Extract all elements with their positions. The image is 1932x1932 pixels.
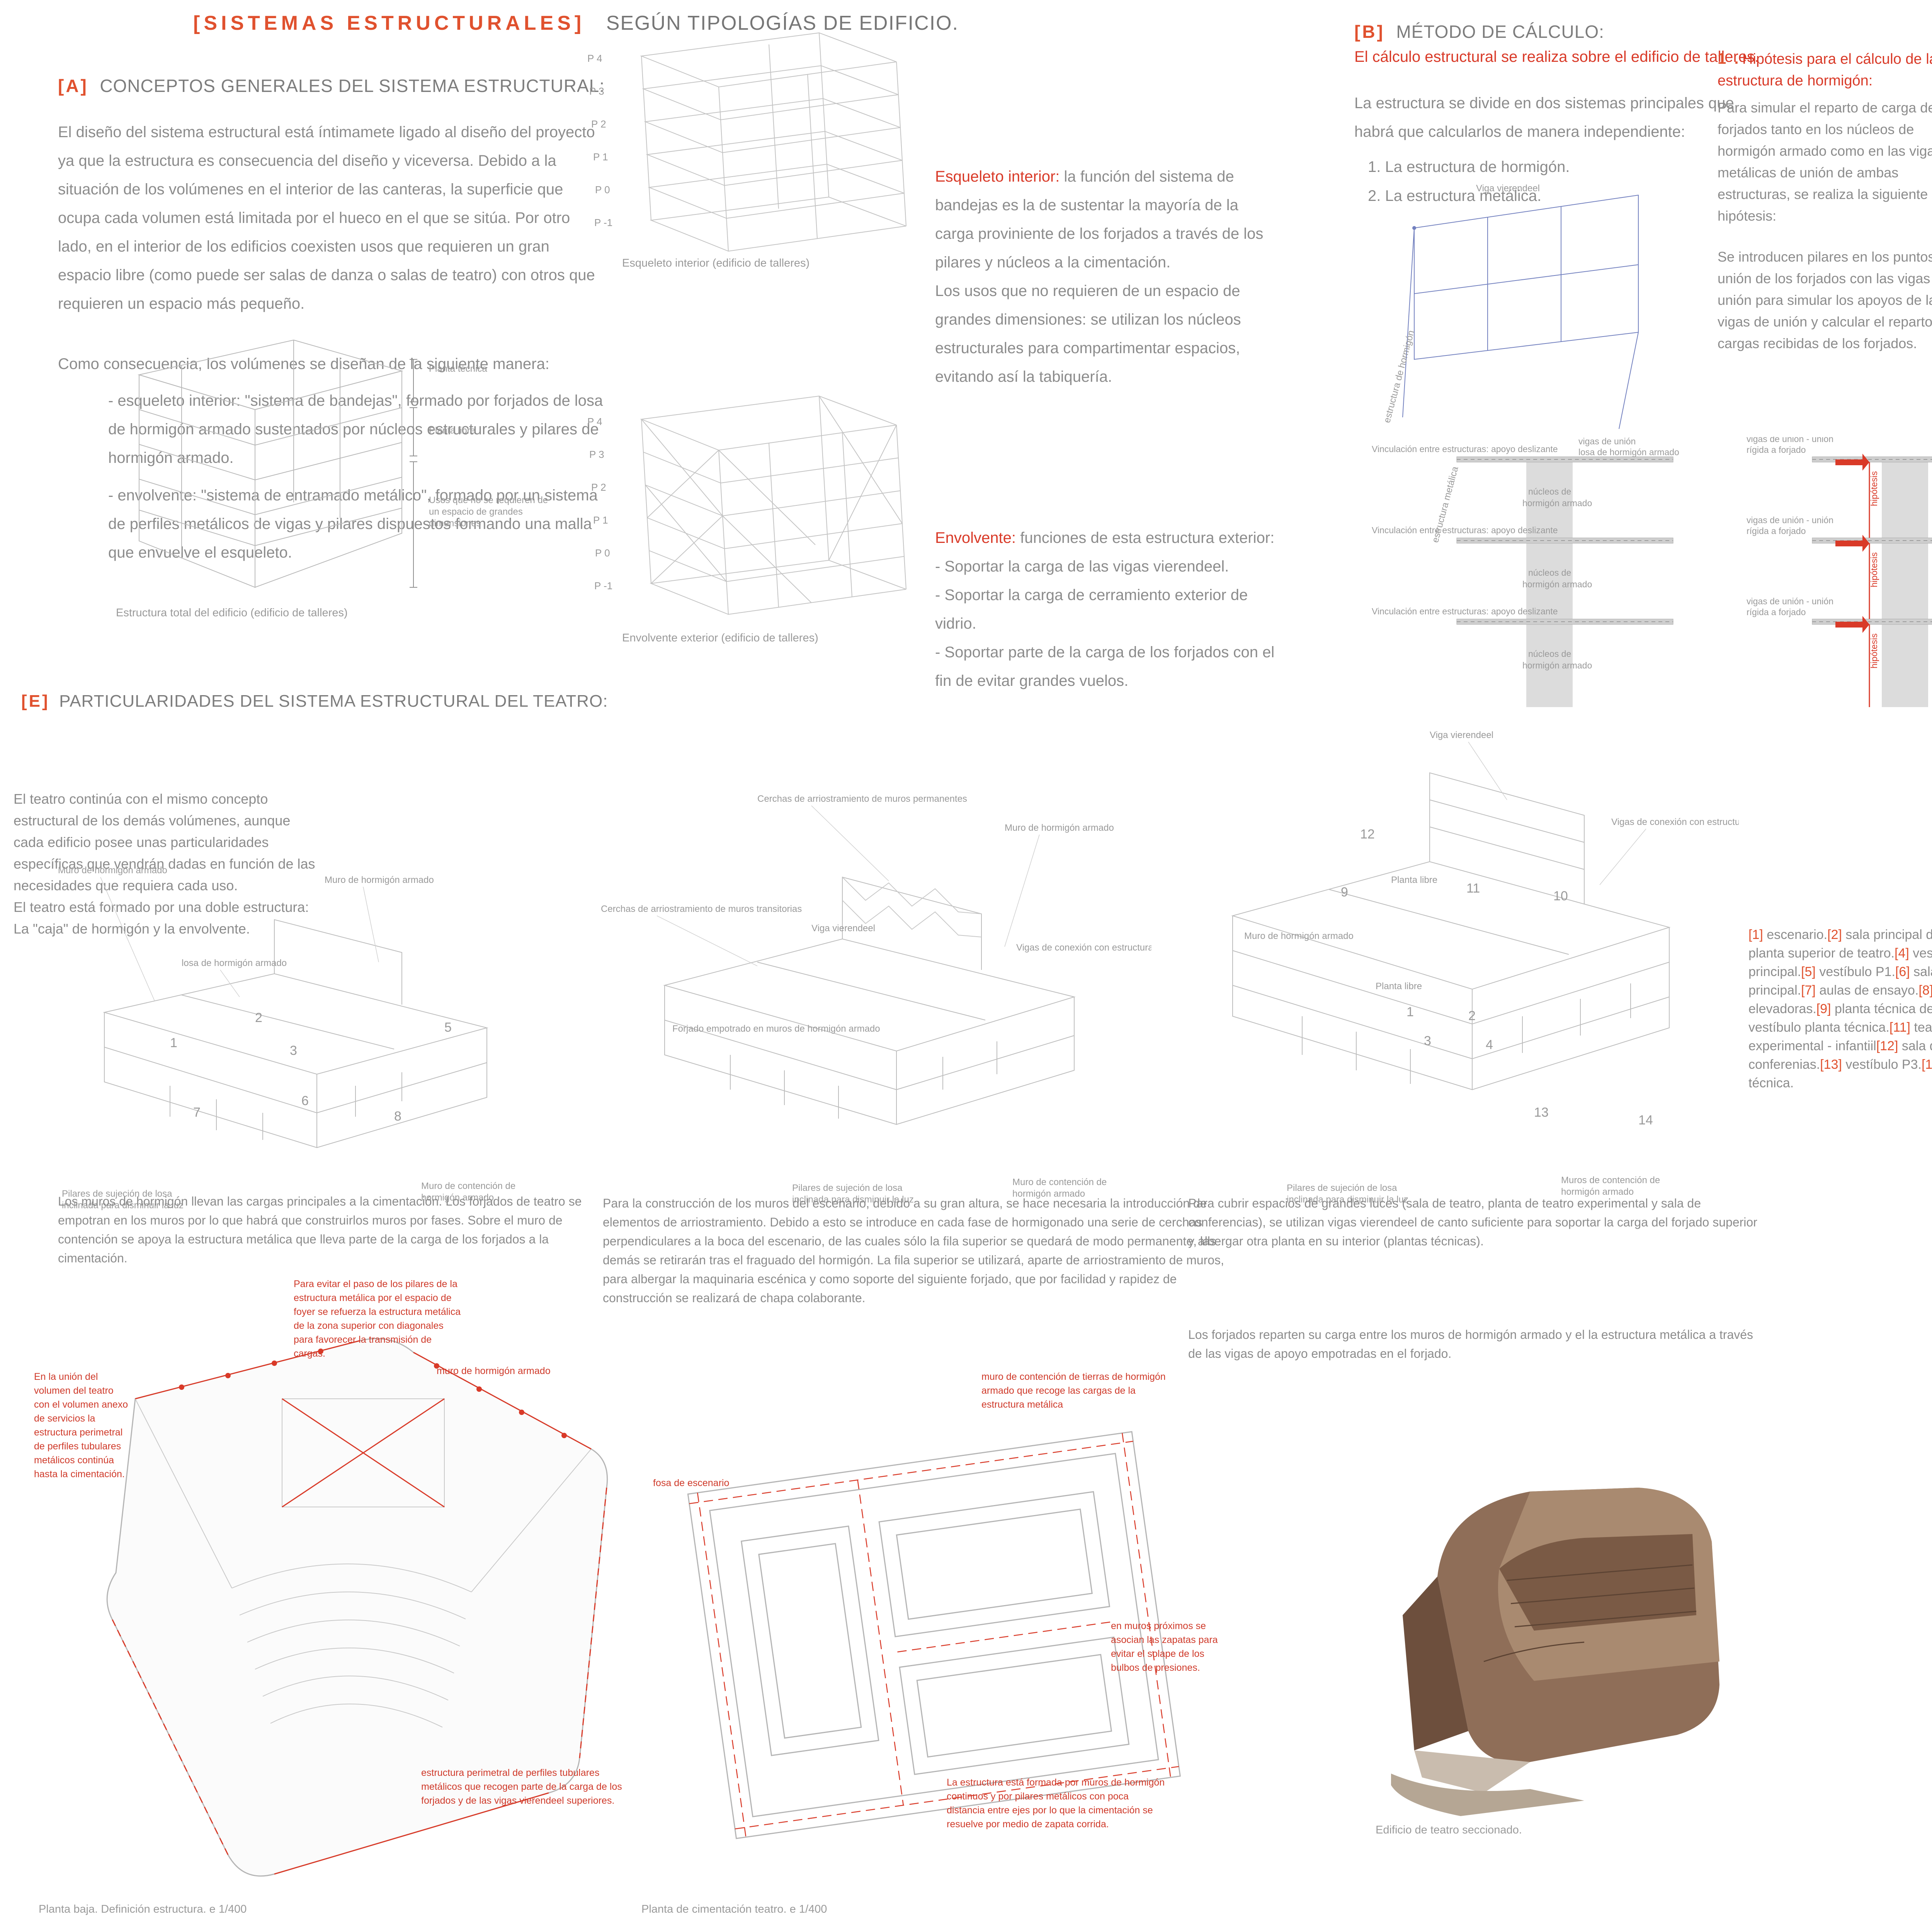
esqueleto-note-text2: Los usos que no requieren de un espacio … bbox=[935, 277, 1275, 391]
teatro-axon-3: 12 9 11 10 1 3 2 4 13 14 Viga vierendeel… bbox=[1175, 723, 1739, 1171]
bracket-label-planta-tecnica: Planta técnica bbox=[429, 363, 487, 375]
axon-label: Viga vierendeel bbox=[1430, 730, 1493, 740]
axon-number: 3 bbox=[1424, 1034, 1431, 1048]
planB-note-bottom: La estructura está formada por muros de … bbox=[947, 1776, 1167, 1831]
planB-note-fosa: fosa de escenario bbox=[653, 1476, 738, 1490]
legend-text: planta técnica de teatro. bbox=[1831, 1002, 1932, 1016]
envolvente-caption: Envolvente exterior (edificio de tallere… bbox=[622, 632, 818, 645]
total-structure-axon-figure bbox=[93, 294, 425, 603]
legend-num: [14] bbox=[1922, 1057, 1932, 1072]
axon-number: 11 bbox=[1466, 881, 1480, 896]
envolvente-note-b1: - Soportar la carga de las vigas vierend… bbox=[935, 552, 1283, 581]
axon-number: 3 bbox=[290, 1043, 297, 1058]
floor-label: P -1 bbox=[594, 580, 612, 592]
envolvente-note-b2: - Soportar la carga de cerramiento exter… bbox=[935, 581, 1283, 638]
legend-num: [7] bbox=[1801, 983, 1816, 998]
section-b-title: MÉTODO DE CÁLCULO: bbox=[1396, 22, 1604, 42]
planA-note-muro: muro de hormigón armado bbox=[437, 1364, 564, 1378]
section-b-tag: [B] bbox=[1354, 22, 1385, 42]
total-structure-caption: Estructura total del edificio (edificio … bbox=[116, 607, 348, 619]
axon-label: Planta libre bbox=[1376, 981, 1422, 992]
axon-number: 12 bbox=[1360, 827, 1375, 842]
planA-note-top: Para evitar el paso de los pilares de la… bbox=[294, 1277, 464, 1361]
axon-number: 9 bbox=[1341, 885, 1348, 900]
axon-label: Cerchas de arriostramiento de muros tran… bbox=[601, 904, 802, 914]
legend-num: [6] bbox=[1895, 964, 1910, 979]
legend-num: [9] bbox=[1816, 1002, 1831, 1016]
label-union-rigida: rígida a forjado bbox=[1747, 526, 1806, 536]
legend-text: vestíbulo planta técnica. bbox=[1748, 1020, 1889, 1035]
planA-caption: Planta baja. Definición estructura. e 1/… bbox=[39, 1903, 247, 1916]
envolvente-note-intro: funciones de esta estructura exterior: bbox=[1016, 529, 1274, 546]
label-losa: losa de hormigón armado bbox=[1578, 447, 1679, 457]
hypothesis1-num: 1 . bbox=[1718, 50, 1740, 67]
section-b-paragraph: La estructura se divide en dos sistemas … bbox=[1354, 89, 1741, 146]
section-e-tag: [E] bbox=[21, 692, 50, 711]
floor-label: P 3 bbox=[589, 449, 604, 460]
label-hipotesis: hipótesis bbox=[1869, 633, 1879, 668]
label-hipotesis: hipótesis bbox=[1869, 471, 1879, 506]
hypothesis1-block: 1 . Hipótesis para el cálculo de la estr… bbox=[1718, 48, 1932, 354]
label-vinculacion: Vinculación entre estructuras: apoyo des… bbox=[1372, 444, 1558, 454]
esqueleto-caption: Esqueleto interior (edificio de talleres… bbox=[622, 257, 810, 270]
presentation-board: [SISTEMAS ESTRUCTURALES] SEGÚN TIPOLOGÍA… bbox=[0, 0, 1932, 1932]
floor-label: P 4 bbox=[587, 53, 602, 64]
viga-vierendeel-label: Viga vierendeel bbox=[1476, 183, 1540, 194]
floor-label: P 3 bbox=[589, 85, 604, 97]
envolvente-note: Envolvente: funciones de esta estructura… bbox=[935, 524, 1283, 695]
floor-label: P 1 bbox=[593, 151, 608, 163]
section-a-title: CONCEPTOS GENERALES DEL SISTEMA ESTRUCTU… bbox=[100, 76, 605, 96]
teatro-axon-1: 1 2 3 5 6 7 8 Muro de hormigón armado Mu… bbox=[54, 846, 541, 1171]
legend-text: aulas de ensayo. bbox=[1816, 983, 1919, 998]
hypothesis1-diagram: Vinculación entre estructuras: apoyo des… bbox=[1368, 437, 1932, 730]
axon-number: 8 bbox=[394, 1109, 401, 1124]
axon-number: 2 bbox=[255, 1010, 262, 1025]
floor-label: P 0 bbox=[595, 184, 610, 196]
axon-label: Planta libre bbox=[1391, 875, 1437, 885]
label-vinculacion: Vinculación entre estructuras: apoyo des… bbox=[1372, 606, 1558, 616]
axon-label: Muro de hormigón armado bbox=[1005, 823, 1114, 833]
planB-note-right: en muros próximos se asocian las zapatas… bbox=[1111, 1619, 1235, 1675]
axon-number: 1 bbox=[1406, 1005, 1414, 1019]
axon-number: 4 bbox=[1486, 1037, 1493, 1052]
spaces-legend: [1] escenario.[2] sala principal de teat… bbox=[1748, 925, 1932, 1092]
legend-num: [8] bbox=[1918, 983, 1932, 998]
axon-number: 1 bbox=[170, 1036, 177, 1050]
legend-text: sala principal de teatro. bbox=[1842, 927, 1932, 942]
legend-num: [11] bbox=[1889, 1020, 1910, 1035]
theatre-model-image bbox=[1368, 1414, 1754, 1820]
label-nucleos: núcleos de bbox=[1528, 568, 1571, 578]
hypothesis1-p2: Se introducen pilares en los puntos de u… bbox=[1718, 246, 1932, 354]
legend-num: [13] bbox=[1820, 1057, 1842, 1072]
legend-num: [5] bbox=[1801, 964, 1816, 979]
teatro-axon-2: Cerchas de arriostramiento de muros perm… bbox=[595, 784, 1151, 1171]
hypothesis1-p1: Para simular el reparto de carga de los … bbox=[1718, 97, 1932, 227]
label-nucleos: hormigón armado bbox=[1522, 660, 1592, 670]
axon-label: Viga vierendeel bbox=[811, 923, 875, 934]
esqueleto-note-lead: Esqueleto interior: bbox=[935, 168, 1060, 185]
section-a-header: [A] CONCEPTOS GENERALES DEL SISTEMA ESTR… bbox=[58, 75, 605, 96]
label-nucleos: núcleos de bbox=[1528, 649, 1571, 659]
envolvente-note-b3: - Soportar parte de la carga de los forj… bbox=[935, 638, 1283, 695]
label-union-rigida: vigas de unión - unión bbox=[1747, 437, 1833, 444]
column1-paragraph: Los muros de hormigón llevan las cargas … bbox=[58, 1192, 611, 1268]
esqueleto-note: Esqueleto interior: la función del siste… bbox=[935, 162, 1275, 391]
legend-num: [1] bbox=[1748, 927, 1763, 942]
section-e-header: [E] PARTICULARIDADES DEL SISTEMA ESTRUCT… bbox=[21, 692, 608, 711]
section-b-header: [B] MÉTODO DE CÁLCULO: bbox=[1354, 21, 1604, 42]
label-union-rigida: vigas de unión - unión bbox=[1747, 596, 1833, 606]
axon-label: Vigas de conexión con estructura metálic… bbox=[1611, 817, 1739, 827]
section-a-paragraph: El diseño del sistema estructural está í… bbox=[58, 118, 599, 318]
label-hipotesis: hipótesis bbox=[1869, 552, 1879, 587]
axon-number: 10 bbox=[1553, 889, 1568, 903]
floor-label: P 4 bbox=[587, 416, 602, 427]
legend-num: [2] bbox=[1827, 927, 1842, 942]
column3-paragraph-b: Los forjados reparten su carga entre los… bbox=[1188, 1325, 1760, 1363]
esqueleto-wireframe-figure: P 4 P 3 P 2 P 1 P 0 P -1 bbox=[572, 19, 912, 255]
axon-label: Forjado empotrado en muros de hormigón a… bbox=[672, 1024, 880, 1034]
label-nucleos: hormigón armado bbox=[1522, 498, 1592, 508]
axon-number: 2 bbox=[1468, 1009, 1476, 1023]
planB-caption: Planta de cimentación teatro. e 1/400 bbox=[641, 1903, 827, 1916]
label-union-rigida: rígida a forjado bbox=[1747, 607, 1806, 617]
bracket-label-usos: Usos que no se requieren de un espacio d… bbox=[429, 495, 556, 529]
hypothesis1-title: Hipótesis para el cálculo de la estructu… bbox=[1718, 51, 1932, 89]
axon-number: 5 bbox=[444, 1020, 452, 1035]
label-vigas-de-union: vigas de unión bbox=[1578, 437, 1636, 446]
legend-text: vestíbulo P3. bbox=[1842, 1057, 1922, 1072]
floor-label: P 2 bbox=[591, 118, 606, 130]
envolvente-wireframe-figure: P 4 P 3 P 2 P 1 P 0 P -1 bbox=[572, 383, 912, 622]
model-caption: Edificio de teatro seccionado. bbox=[1376, 1824, 1522, 1837]
column3-paragraph-a: Para cubrir espacios de grandes luces (s… bbox=[1188, 1194, 1760, 1251]
axon-number: 13 bbox=[1534, 1105, 1549, 1120]
label-nucleos: núcleos de bbox=[1528, 486, 1571, 497]
axon-label: Cerchas de arriostramiento de muros perm… bbox=[757, 794, 967, 804]
blue-structure-axon-figure: Viga vierendeel bbox=[1387, 178, 1665, 433]
label-union-rigida: rígida a forjado bbox=[1747, 445, 1806, 455]
legend-text: vestíbulo P1. bbox=[1816, 964, 1895, 979]
page-title-bracket: [SISTEMAS ESTRUCTURALES] bbox=[193, 12, 585, 34]
axon-label: Muro de hormigón armado bbox=[1244, 931, 1354, 941]
axon-number: 6 bbox=[301, 1094, 309, 1108]
floor-label: P -1 bbox=[594, 217, 612, 228]
label-union-rigida: vigas de unión - unión bbox=[1747, 515, 1833, 525]
section-a-tag: [A] bbox=[58, 76, 88, 96]
axon-label: Muro de hormigón armado bbox=[325, 875, 434, 885]
axon-label: Muro de hormigón armado bbox=[58, 865, 167, 876]
planA-note-bottom: estructura perimetral de perfiles tubula… bbox=[421, 1766, 622, 1808]
axon-label: losa de hormigón armado bbox=[182, 958, 287, 968]
label-nucleos: hormigón armado bbox=[1522, 579, 1592, 589]
column2-paragraph: Para la construcción de los muros del es… bbox=[603, 1194, 1236, 1308]
axon-label: Vigas de conexión con estructura metálic… bbox=[1016, 942, 1151, 953]
planA-note-left: En la unión del volumen del teatro con e… bbox=[34, 1370, 131, 1481]
planB-note-top: muro de contención de tierras de hormigó… bbox=[981, 1370, 1167, 1412]
axon-number: 7 bbox=[193, 1105, 201, 1120]
section-b-subtitle: El cálculo estructural se realiza sobre … bbox=[1354, 48, 1759, 66]
floor-label: P 2 bbox=[591, 481, 606, 493]
label-vinculacion: Vinculación entre estructuras: apoyo des… bbox=[1372, 525, 1558, 535]
legend-text: planta superior de teatro. bbox=[1748, 946, 1895, 961]
legend-text: escenario. bbox=[1763, 927, 1827, 942]
bracket-label-planta-libre: Planta libre bbox=[429, 425, 475, 437]
floor-label: P 1 bbox=[593, 514, 608, 526]
envolvente-note-lead: Envolvente: bbox=[935, 529, 1016, 546]
floor-label: P 0 bbox=[595, 547, 610, 559]
legend-num: [12] bbox=[1876, 1039, 1898, 1053]
section-b-item1: 1. La estructura de hormigón. bbox=[1368, 153, 1570, 181]
legend-num: [4] bbox=[1895, 946, 1909, 961]
section-e-title: PARTICULARIDADES DEL SISTEMA ESTRUCTURAL… bbox=[59, 692, 608, 711]
axon-number: 14 bbox=[1638, 1113, 1653, 1128]
